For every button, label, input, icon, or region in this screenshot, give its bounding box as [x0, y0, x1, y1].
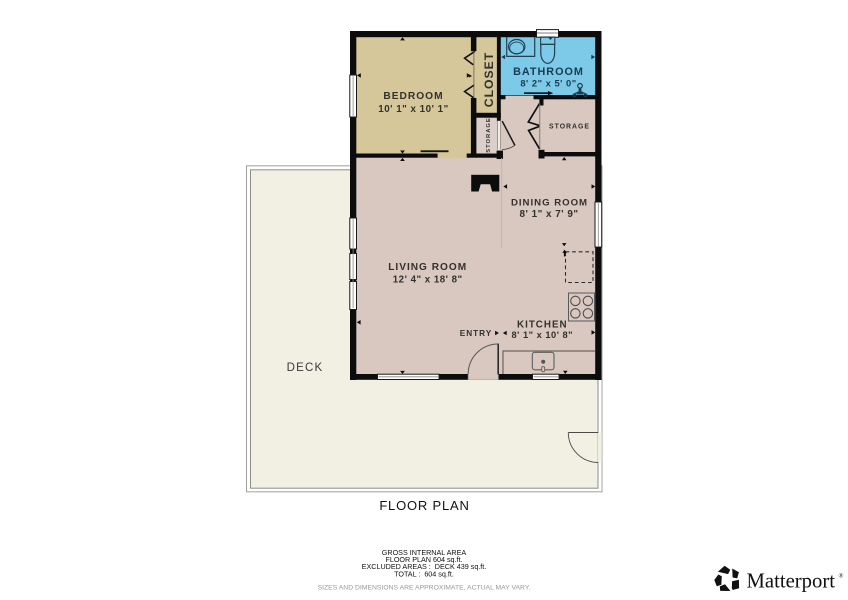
svg-text:CLOSET: CLOSET	[482, 52, 496, 107]
svg-text:SIZES AND DIMENSIONS ARE APPRO: SIZES AND DIMENSIONS ARE APPROXIMATE, AC…	[318, 585, 531, 592]
svg-text:STORAGE: STORAGE	[486, 117, 492, 153]
svg-text:FLOOR PLAN: FLOOR PLAN	[379, 498, 469, 513]
svg-text:®: ®	[839, 573, 844, 580]
svg-text:DECK: DECK	[287, 362, 324, 374]
svg-text:ENTRY: ENTRY	[460, 329, 492, 338]
svg-text:STORAGE: STORAGE	[549, 123, 590, 130]
svg-text:12' 4" x 18' 8": 12' 4" x 18' 8"	[393, 275, 463, 286]
svg-text:8' 1" x 7' 9": 8' 1" x 7' 9"	[520, 209, 579, 220]
svg-text:BATHROOM: BATHROOM	[513, 66, 584, 78]
svg-text:KITCHEN: KITCHEN	[517, 320, 568, 331]
svg-text:8' 1" x 10' 8": 8' 1" x 10' 8"	[512, 330, 574, 340]
svg-text:BEDROOM: BEDROOM	[383, 91, 443, 102]
svg-text:DINING ROOM: DINING ROOM	[511, 197, 588, 208]
svg-text:Matterport: Matterport	[747, 571, 836, 593]
svg-text:8' 2" x 5' 0": 8' 2" x 5' 0"	[520, 77, 576, 88]
svg-text:TOTAL : 604 sq.ft.: TOTAL : 604 sq.ft.	[394, 569, 454, 578]
svg-text:LIVING ROOM: LIVING ROOM	[388, 262, 467, 273]
svg-text:10' 1" x 10' 1": 10' 1" x 10' 1"	[378, 104, 448, 115]
